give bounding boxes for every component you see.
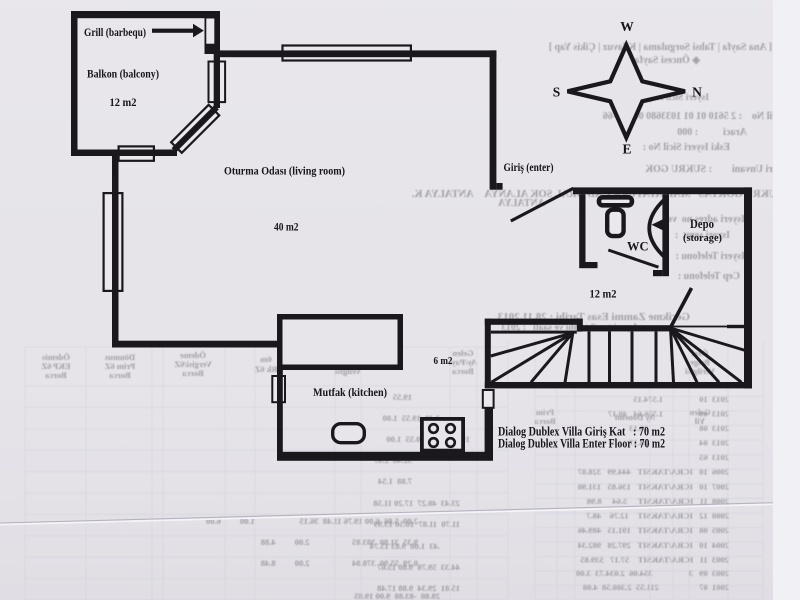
svg-text:Balkon (balcony): Balkon (balcony): [87, 67, 159, 81]
svg-text:7.88 1.54: 7.88 1.54: [377, 476, 412, 486]
svg-text:Eski Isyeri Sicil No :: Eski Isyeri Sicil No :: [643, 142, 730, 153]
svg-text:E: E: [622, 142, 631, 157]
svg-text:(storage): (storage): [683, 232, 722, 244]
svg-text:Borca: Borca: [181, 368, 203, 378]
svg-text:12 m2: 12 m2: [590, 289, 617, 301]
svg-text:0.29 55.90 378.04: 0.29 55.90 378.04 2.00 8.48: [261, 558, 418, 568]
svg-text:Cep Telefonu :: Cep Telefonu :: [678, 271, 740, 282]
svg-text:Depo: Depo: [690, 217, 714, 231]
svg-text:2005 08 ICRA/TAKSIT 191.1: 2005 08 ICRA/TAKSIT 191.15 489.46: [578, 525, 729, 535]
svg-text:2004 10 ICRA/TAKSIT 297.2: 2004 10 ICRA/TAKSIT 297.28 982.34: [577, 540, 729, 550]
svg-text:23.43 40.27 17.20 11.58: 23.43 40.27 17.20 11.58: [373, 498, 460, 508]
svg-text:40 m2: 40 m2: [274, 222, 299, 234]
svg-text:Grill (barbequ): Grill (barbequ): [84, 25, 146, 39]
svg-text:Isyeri Telefonu :: Isyeri Telefonu :: [676, 251, 745, 262]
svg-text:Oturma Odası (living room): Oturma Odası (living room): [224, 164, 345, 178]
svg-text:Giriş (enter): Giriş (enter): [504, 162, 554, 174]
svg-text:2001 07 211: 2001 07 211.55 2.380.58 4.08: [583, 582, 729, 592]
svg-text:2003 11 ICRA/TAKSIT 57.1: 2003 11 ICRA/TAKSIT 57.17 539.85: [580, 555, 729, 565]
svg-text:2013 09. 1.556: 2013 09. 1.556.64 40.17: [607, 409, 729, 419]
svg-text:Rk 6Z: Rk 6Z: [254, 364, 277, 374]
svg-text:Araci : 000: Araci : 000: [677, 127, 747, 138]
svg-text:◈ Öncesi Sayfa: ◈ Öncesi Sayfa: [635, 53, 701, 66]
svg-text:2007 10 ICRA/TAKSIT 136.8: 2007 10 ICRA/TAKSIT 136.85 131.98: [578, 482, 729, 492]
svg-text:Mutfak (kitchen): Mutfak (kitchen): [313, 385, 387, 399]
svg-text:9.35 31.80 303.85: 9.35 31.80 303.85 2.00 4.88: [261, 537, 418, 547]
svg-text:6m: 6m: [260, 354, 271, 364]
svg-text:Borca: Borca: [108, 370, 130, 380]
svg-text:N: N: [692, 85, 702, 100]
svg-text:28.80 -83.88 9.00 19.85: 28.80 -83.88 9.00 19.85: [354, 591, 440, 600]
svg-text:12 m2: 12 m2: [110, 97, 137, 109]
svg-text:2013 65: 2013 65: [699, 452, 729, 462]
svg-text:2003 09 3 3: 2003 09 3 354.06 2.034.73 3.00: [576, 568, 729, 578]
svg-text:2013 10 1.574: 2013 10 1.574.15: [633, 394, 729, 404]
svg-text:WC: WC: [627, 240, 649, 254]
svg-text:Borca: Borca: [44, 370, 66, 380]
svg-text:6 m2: 6 m2: [434, 355, 453, 367]
svg-text:2006 10 ICRA/TAKSIT 444.9: 2006 10 ICRA/TAKSIT 444.99 328.07: [577, 467, 729, 477]
svg-text:Dialog Dublex Villa Enter Floo: Dialog Dublex Villa Enter Floor : 70 m2: [498, 436, 665, 451]
svg-text:[ Ana Sayfa | Tahsi Sorgulama: [ Ana Sayfa | Tahsi Sorgulama | Kilavuz …: [549, 42, 772, 53]
svg-text:Isyeri Unvani : SUKRU G: Isyeri Unvani : SUKRU GOK: [645, 164, 790, 175]
svg-text:2.00 5.86 6.00 19.76 11.48: 2.00 5.86 6.00 19.76 11.48 36.15 1.00 6.…: [206, 516, 418, 526]
svg-text:W: W: [620, 19, 634, 34]
svg-text:19.55: 19.55: [393, 392, 412, 402]
svg-text:2008 12 ICRA/TAKSIT 12.7: 2008 12 ICRA/TAKSIT 12.76 48.7: [586, 511, 729, 521]
svg-text:S: S: [553, 85, 561, 100]
svg-text:Borca: Borca: [451, 366, 473, 376]
